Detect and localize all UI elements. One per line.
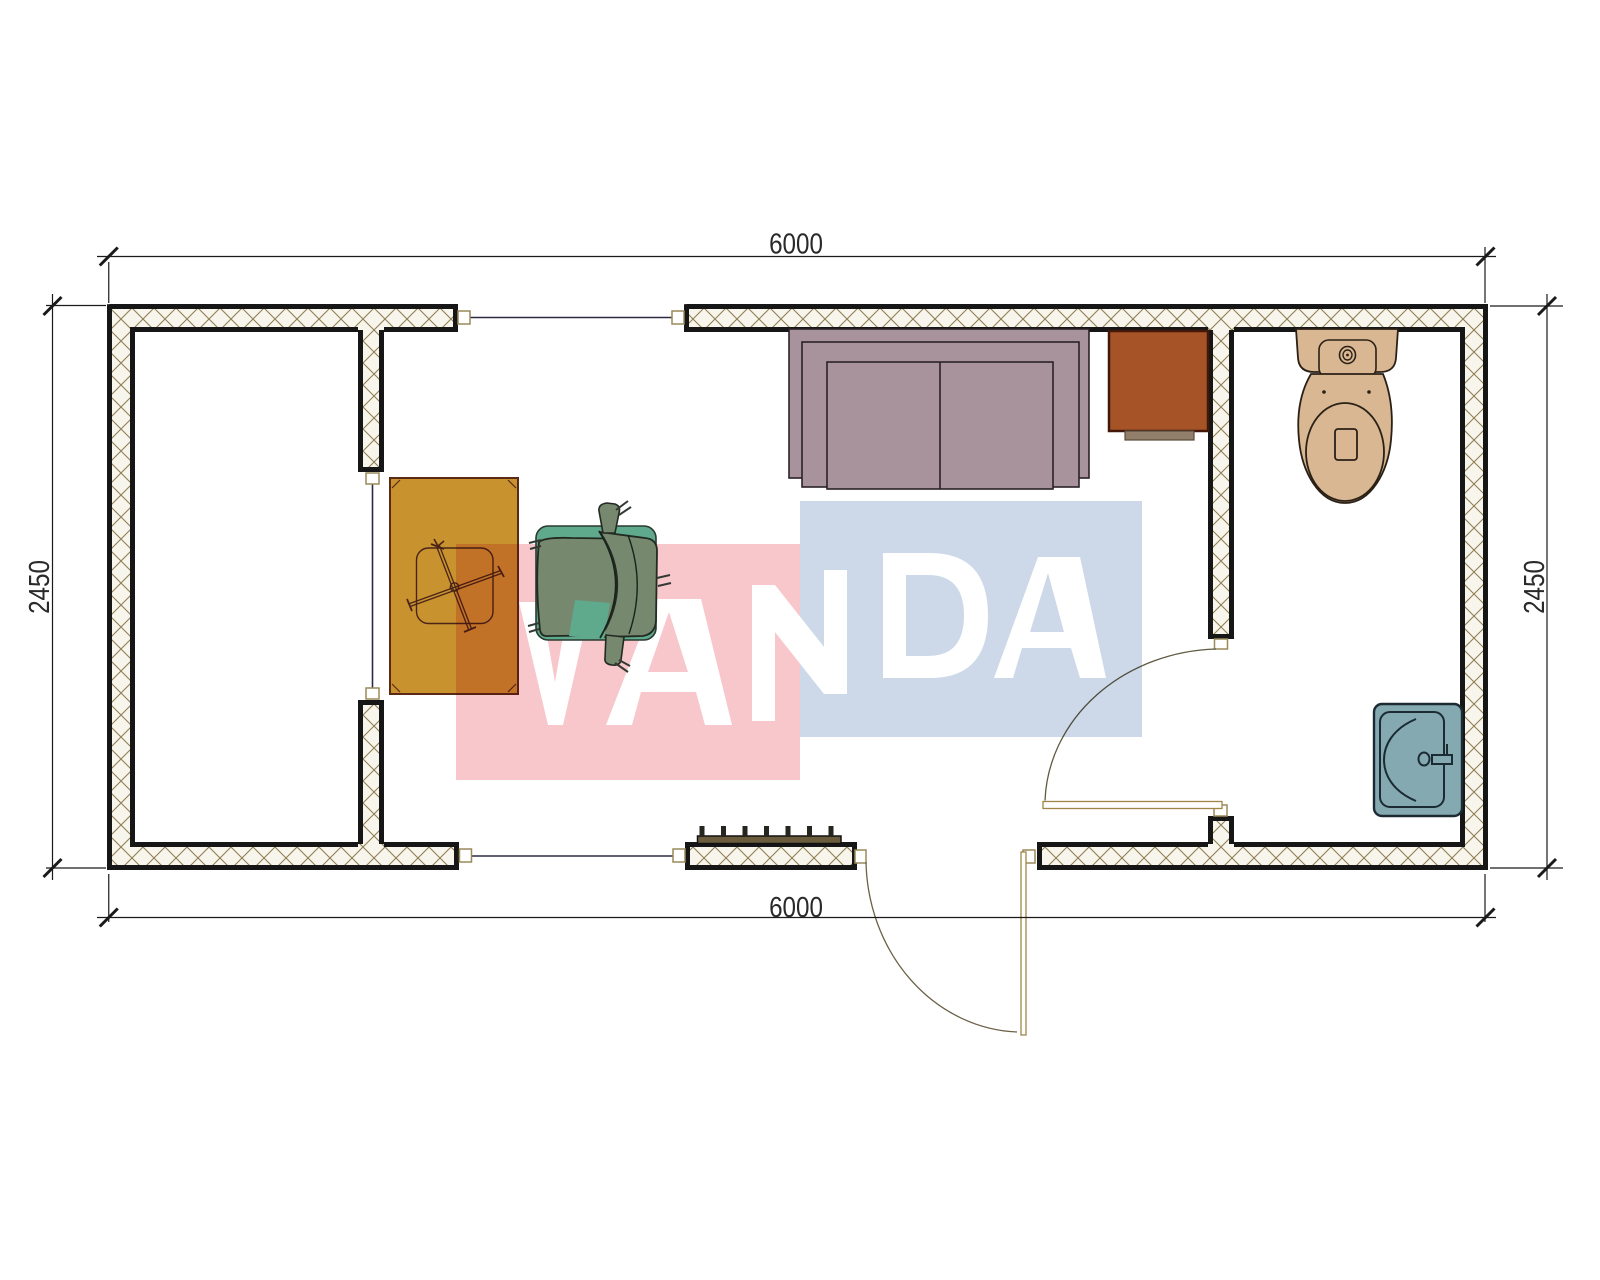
svg-text:6000: 6000 [769,891,823,923]
svg-text:2450: 2450 [1518,560,1550,614]
svg-text:2450: 2450 [23,560,55,614]
svg-text:6000: 6000 [769,228,823,260]
